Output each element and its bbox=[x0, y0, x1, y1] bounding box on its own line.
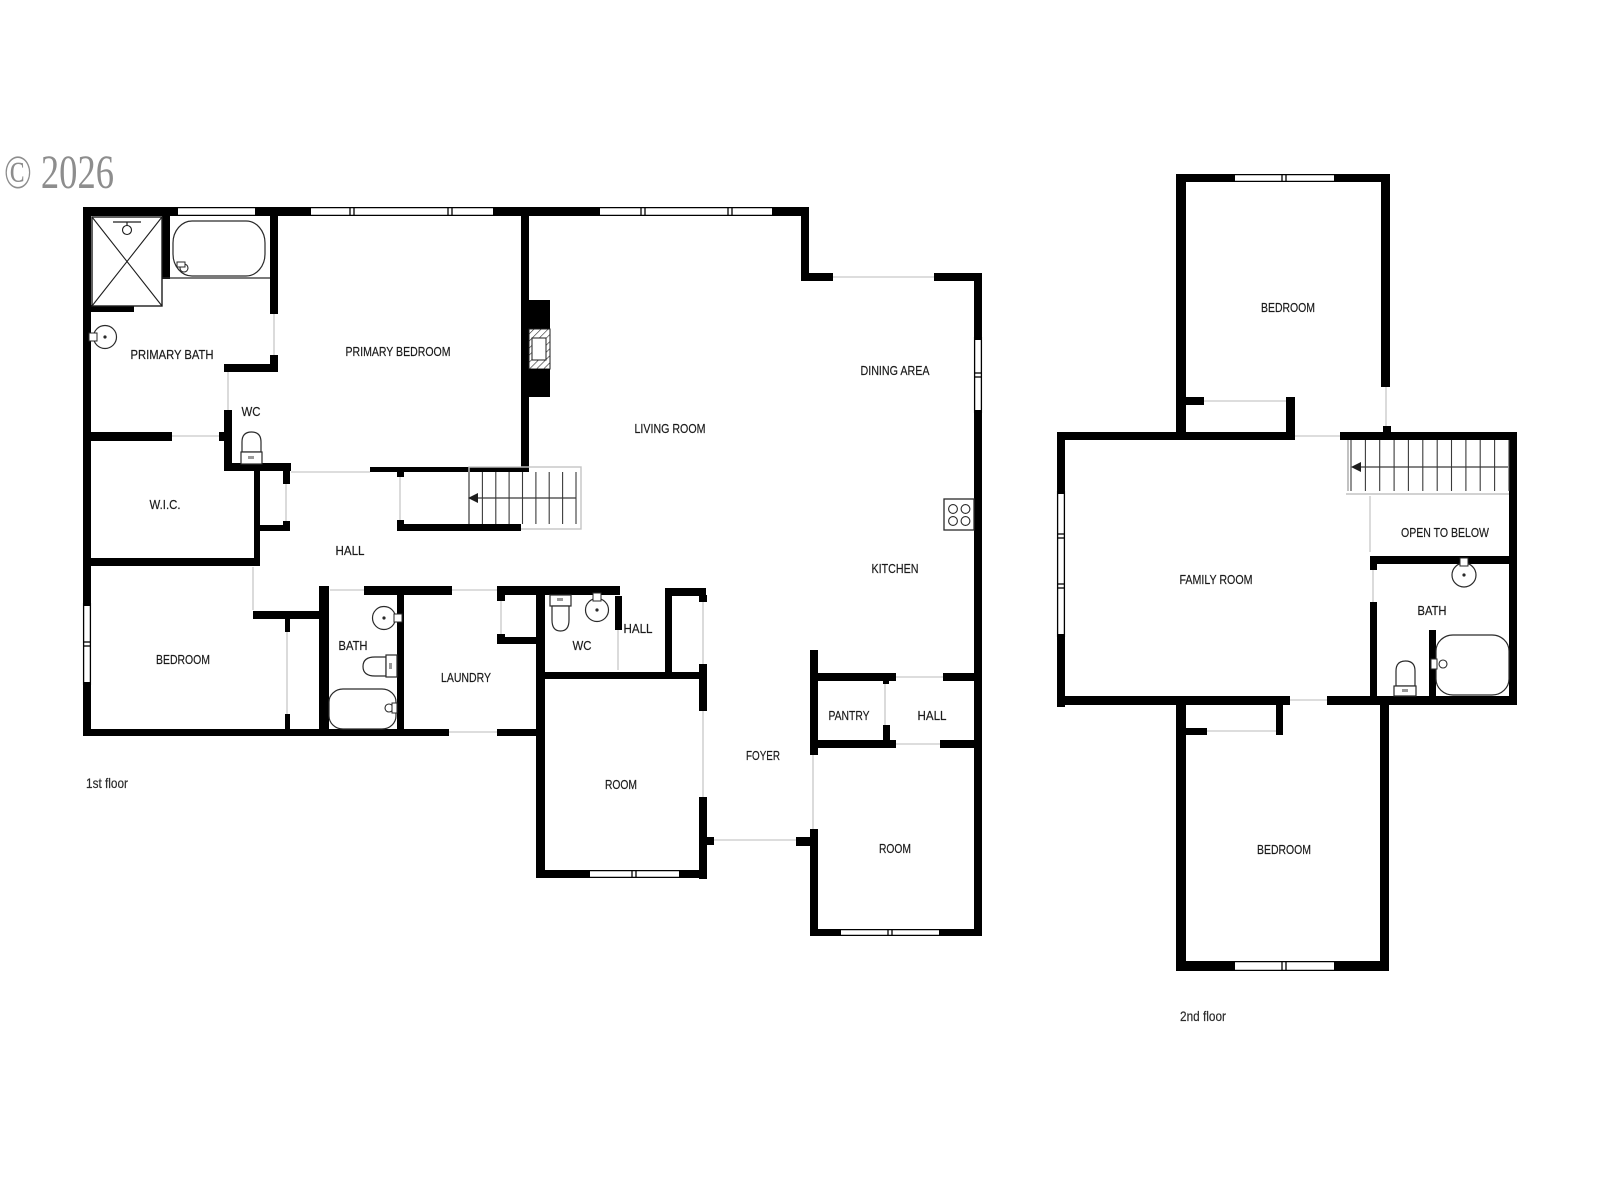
svg-text:ROOM: ROOM bbox=[879, 841, 911, 856]
svg-text:KITCHEN: KITCHEN bbox=[872, 561, 919, 576]
svg-text:PRIMARY BEDROOM: PRIMARY BEDROOM bbox=[346, 344, 451, 359]
svg-text:WC: WC bbox=[573, 638, 592, 653]
svg-text:BATH: BATH bbox=[1418, 603, 1447, 618]
svg-text:FOYER: FOYER bbox=[746, 748, 780, 763]
svg-text:ROOM: ROOM bbox=[605, 777, 637, 792]
svg-text:OPEN TO BELOW: OPEN TO BELOW bbox=[1401, 525, 1490, 540]
svg-text:© 2026: © 2026 bbox=[4, 146, 114, 199]
svg-text:HALL: HALL bbox=[336, 543, 365, 558]
svg-text:DINING AREA: DINING AREA bbox=[861, 363, 930, 378]
svg-text:WC: WC bbox=[242, 404, 261, 419]
svg-text:LAUNDRY: LAUNDRY bbox=[441, 670, 491, 685]
svg-text:PRIMARY BATH: PRIMARY BATH bbox=[131, 347, 214, 362]
svg-text:LIVING ROOM: LIVING ROOM bbox=[635, 421, 706, 436]
svg-text:W.I.C.: W.I.C. bbox=[150, 497, 181, 512]
svg-text:2nd floor: 2nd floor bbox=[1180, 1008, 1226, 1024]
svg-text:HALL: HALL bbox=[918, 708, 947, 723]
svg-text:BEDROOM: BEDROOM bbox=[1261, 300, 1315, 315]
svg-text:BATH: BATH bbox=[339, 638, 368, 653]
svg-text:PANTRY: PANTRY bbox=[829, 708, 870, 723]
svg-text:1st floor: 1st floor bbox=[86, 775, 128, 791]
svg-text:HALL: HALL bbox=[624, 621, 653, 636]
svg-text:BEDROOM: BEDROOM bbox=[156, 652, 210, 667]
svg-text:FAMILY ROOM: FAMILY ROOM bbox=[1180, 572, 1253, 587]
svg-text:BEDROOM: BEDROOM bbox=[1257, 842, 1311, 857]
